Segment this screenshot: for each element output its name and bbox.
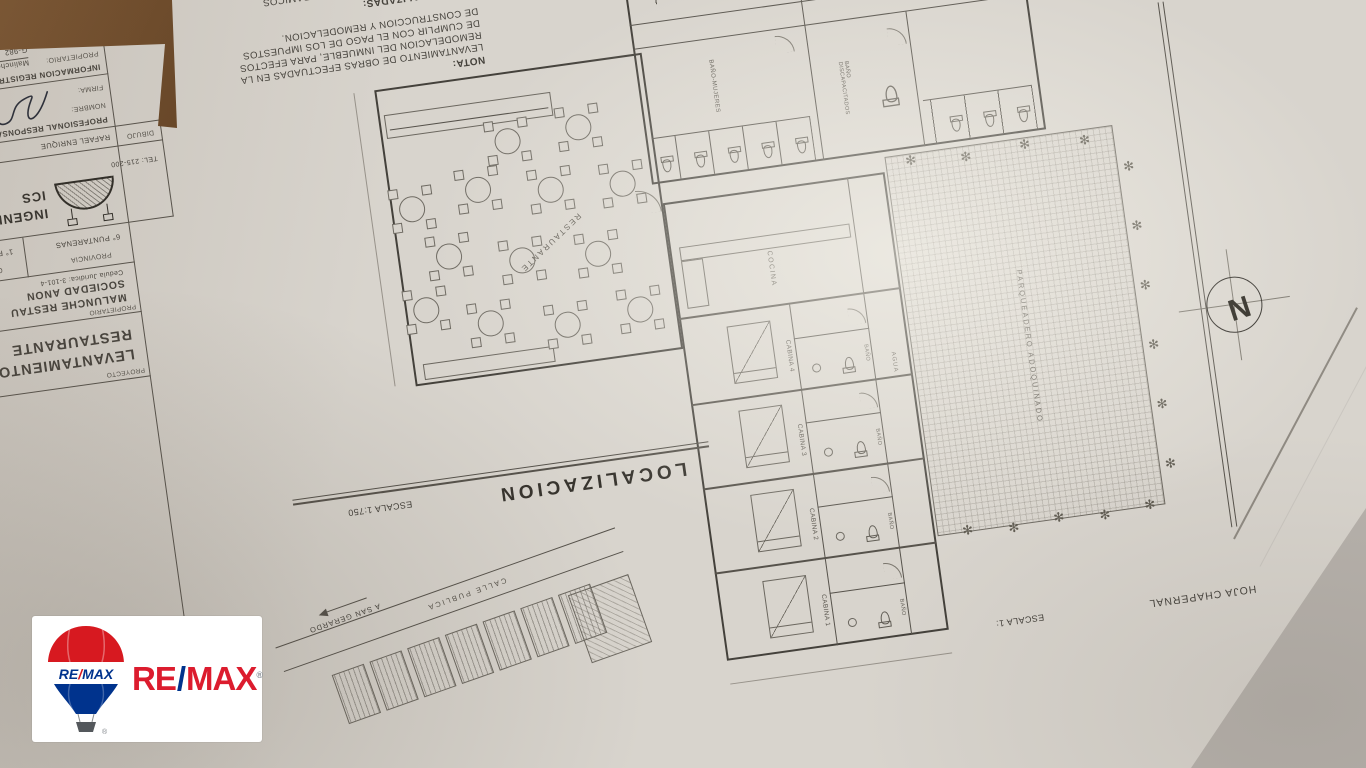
photo-of-blueprint: ESCALA 1:75 NOTA: LEVANTAMIENTO DE OBRAS… [0, 0, 1366, 768]
flower-icon [1144, 498, 1156, 509]
flower-icon [1053, 511, 1065, 522]
remax-card: RE/MAX ® RE/MAX® [32, 616, 262, 742]
plan-caption-scale: ESCALA 1: [995, 612, 1045, 629]
plan-caption: HOJA CHAPERNAL [1148, 583, 1257, 610]
provincia-value: 6° PUNTARENAS [55, 232, 121, 250]
dibujo-label: DIBUJO [126, 128, 154, 139]
flag-icon [67, 218, 78, 226]
svg-text:RE/MAX: RE/MAX [59, 666, 115, 682]
bed-symbol [727, 320, 779, 384]
flower-icon [1164, 456, 1176, 467]
flower-icon [1099, 508, 1111, 519]
canton-value: 1° PUNTARENAS [0, 247, 14, 265]
bed-symbol [762, 575, 814, 639]
remax-wordmark: RE/MAX® [132, 660, 263, 698]
firm-name-line2: ICS [20, 188, 47, 206]
bed-symbol [750, 489, 802, 553]
localizacion-scale: ESCALA 1:750 [347, 499, 413, 518]
obra-item: REINSTALACION DE PISOS CERAMICOS [262, 0, 460, 8]
firm-name-line1: INGENIER [0, 206, 49, 231]
flower-icon [959, 150, 971, 161]
flag-icon [103, 213, 114, 221]
flower-icon [1156, 397, 1168, 408]
flower-icon [961, 523, 973, 534]
flower-icon [1078, 133, 1090, 144]
localizacion-title: LOCALIZACION [496, 457, 689, 505]
registro-propietario-value: Malinche [0, 57, 30, 72]
flower-icon [1008, 521, 1020, 532]
firm-tel: TEL: 215-200 [110, 154, 158, 168]
flower-icon [1139, 278, 1151, 289]
flower-icon [1131, 219, 1143, 230]
bed-symbol [738, 405, 790, 469]
flower-icon [1147, 338, 1159, 349]
nota-title: NOTA: [452, 54, 486, 69]
registered-mark: ® [102, 728, 108, 736]
compass-rose: N [1171, 241, 1297, 367]
provincia-label: PROVINCIA [70, 251, 112, 264]
engineering-firm-logo [52, 173, 122, 225]
flower-icon [1018, 138, 1030, 149]
flower-icon [904, 154, 916, 165]
remax-balloon-icon: RE/MAX ® [40, 622, 132, 738]
flower-icon [1122, 159, 1134, 170]
canton-label: CANTON [0, 266, 3, 277]
registro-propietario-label: PROPIETARIO: [45, 49, 98, 63]
nombre-label: NOMBRE: [71, 101, 106, 113]
firma-label: FIRMA: [77, 83, 103, 93]
road-label: CALLE PUBLICA [426, 576, 508, 613]
